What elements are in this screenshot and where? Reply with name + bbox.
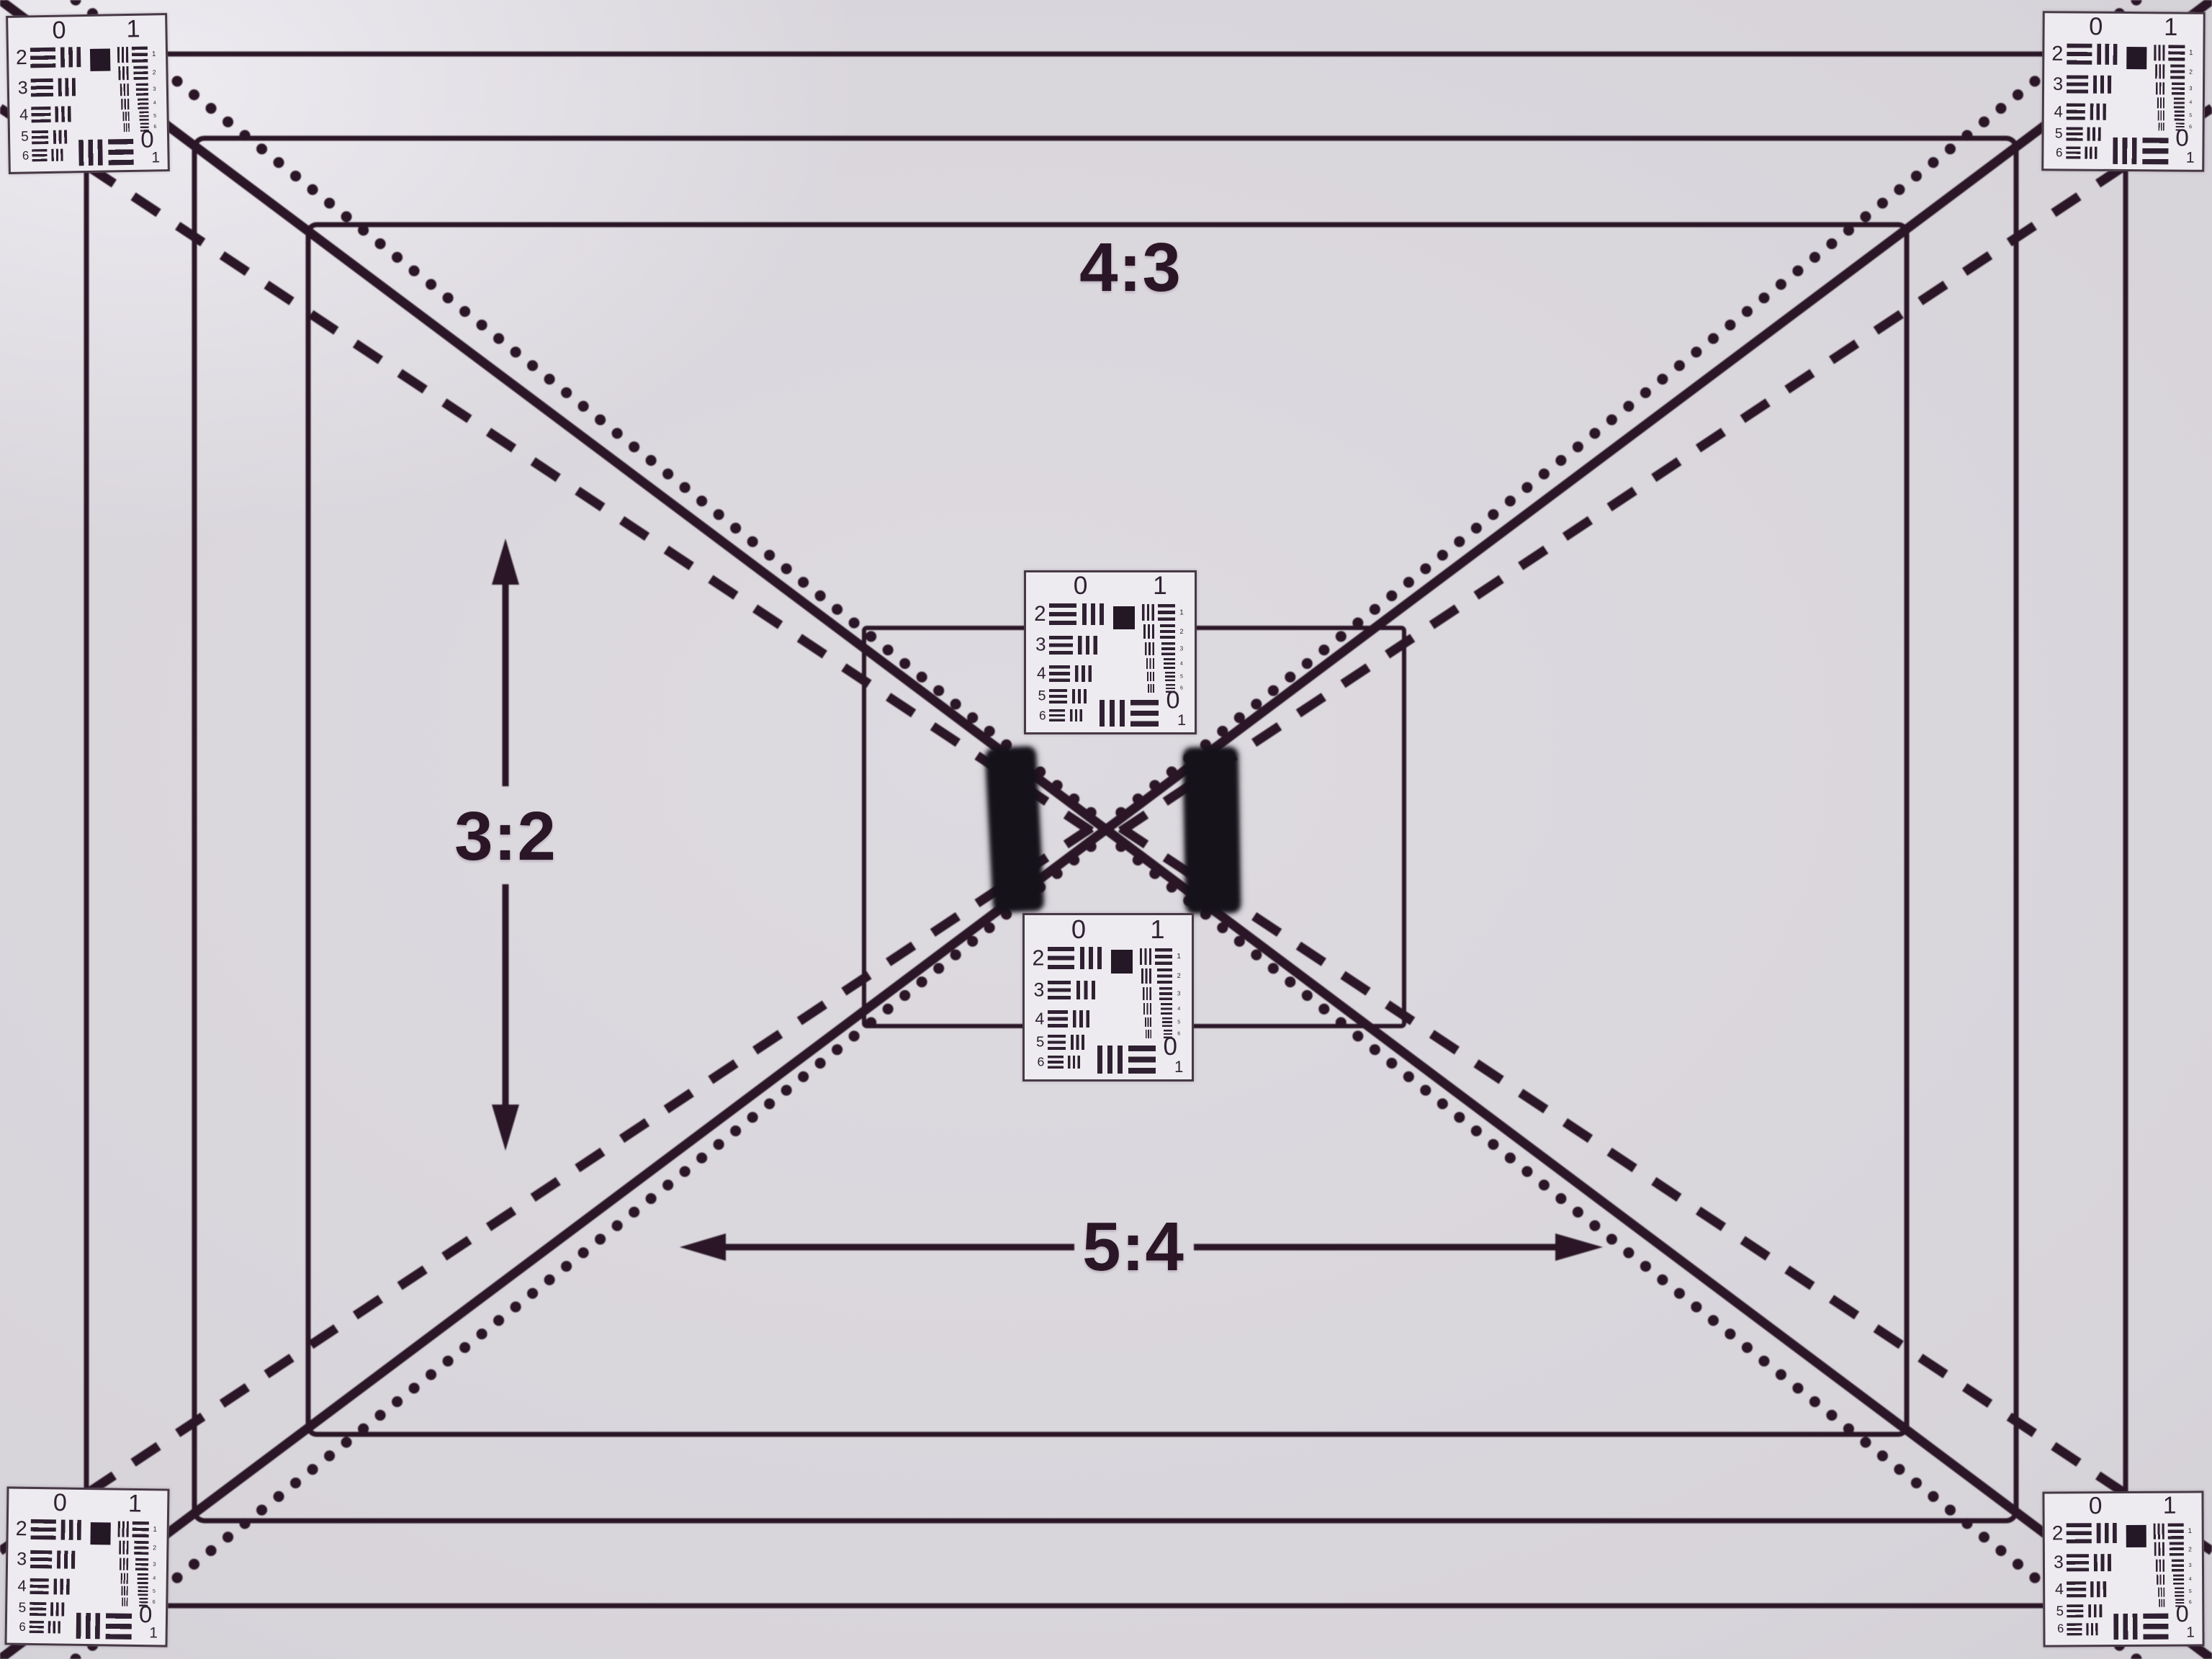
usaf-hbars-left-3: [1049, 636, 1073, 655]
usaf-hbars-right-4: [1164, 658, 1175, 669]
usaf-hbars-right-1: [1158, 604, 1175, 621]
usaf-vbars-right-5: [2158, 111, 2164, 120]
usaf-element-number-3: 3: [1035, 635, 1046, 656]
usaf-index-4: 4: [2189, 100, 2192, 105]
usaf-index-5: 5: [1180, 674, 1183, 679]
usaf-element-number-2: 2: [2052, 1522, 2064, 1545]
usaf-hbars-left-6: [1048, 1056, 1064, 1069]
usaf-index-3: 3: [153, 86, 156, 92]
usaf-group-label-0-bottom: 0: [1164, 1033, 1178, 1061]
arrow-5-4-right-head: [1555, 1233, 1603, 1261]
usaf-target-center-lower: 012345612345601: [1022, 913, 1194, 1082]
usaf-vbars-left-6: [2086, 1623, 2098, 1635]
aspect-ratio-label-4-3: 4:3: [1079, 228, 1182, 307]
usaf-group-label-1-bottom: 1: [1177, 711, 1186, 729]
usaf-vbars-left-3: [58, 78, 76, 96]
usaf-hbars-left-2: [30, 48, 55, 68]
usaf-vbars-left-4: [2090, 104, 2106, 120]
usaf-index-5: 5: [153, 114, 156, 119]
usaf-vbars-bottom: [1100, 700, 1125, 727]
usaf-vbars-right-5: [122, 112, 129, 121]
lens-test-chart-photo: 4:3 3:2 5:4 0123456123456010123456123456…: [0, 0, 2212, 1659]
usaf-vbars-right-2: [1143, 624, 1154, 639]
usaf-index-5: 5: [2189, 1589, 2192, 1594]
usaf-vbars-left-5: [1071, 1035, 1085, 1049]
usaf-index-6: 6: [2189, 1600, 2192, 1605]
usaf-hbars-left-2: [30, 1519, 55, 1540]
usaf-group-label-1-bottom: 1: [149, 1624, 158, 1642]
usaf-vbars-left-2: [60, 1519, 81, 1540]
usaf-vbars-left-5: [2087, 127, 2101, 141]
usaf-index-6: 6: [153, 1600, 156, 1605]
usaf-hbars-right-3: [2172, 82, 2185, 94]
usaf-hbars-bottom: [1128, 1046, 1156, 1074]
usaf-target-top-left: 012345612345601: [6, 13, 170, 174]
usaf-hbars-right-1: [1155, 948, 1172, 965]
usaf-hbars-left-4: [30, 1578, 49, 1594]
usaf-index-4: 4: [153, 101, 156, 106]
usaf-vbars-right-1: [2154, 45, 2165, 61]
usaf-element-number-5: 5: [2055, 126, 2063, 142]
usaf-element-number-3: 3: [2053, 74, 2063, 95]
usaf-index-2: 2: [2188, 1545, 2192, 1552]
usaf-vbars-left-6: [1068, 1056, 1080, 1069]
usaf-hbars-right-4: [138, 98, 148, 109]
usaf-element-number-4: 4: [1037, 664, 1046, 683]
usaf-vbars-left-6: [48, 1622, 60, 1634]
usaf-vbars-left-2: [1080, 947, 1102, 968]
usaf-vbars-left-4: [2090, 1581, 2106, 1597]
arrow-3-2-down-head: [492, 1105, 519, 1151]
usaf-hbars-bottom: [2143, 1614, 2169, 1640]
usaf-hbars-left-2: [1048, 947, 1074, 968]
usaf-hbars-right-5: [138, 1586, 148, 1596]
usaf-vbars-left-6: [51, 149, 63, 161]
usaf-hbars-left-6: [2066, 147, 2081, 159]
usaf-element-number-6: 6: [2056, 145, 2063, 160]
usaf-target-center-upper: 012345612345601: [1024, 570, 1197, 734]
usaf-hbars-left-4: [2066, 104, 2085, 120]
usaf-element-number-4: 4: [1035, 1009, 1044, 1028]
usaf-group-label-0: 0: [1074, 572, 1088, 601]
usaf-index-1: 1: [2189, 50, 2193, 58]
usaf-black-square: [91, 1522, 112, 1545]
usaf-black-square: [1111, 950, 1133, 974]
usaf-index-2: 2: [153, 1544, 156, 1551]
usaf-hbars-left-6: [29, 1621, 44, 1633]
arrow-5-4-left-head: [680, 1233, 726, 1261]
usaf-vbars-left-5: [50, 1602, 64, 1616]
usaf-index-2: 2: [153, 69, 156, 76]
usaf-vbars-left-4: [55, 107, 71, 122]
usaf-hbars-right-1: [132, 46, 148, 62]
usaf-element-number-3: 3: [17, 1549, 27, 1570]
usaf-vbars-right-2: [119, 1540, 129, 1555]
usaf-element-number-3: 3: [17, 78, 27, 99]
usaf-vbars-right-3: [120, 84, 129, 96]
usaf-group-label-0-bottom: 0: [139, 1601, 153, 1628]
usaf-group-label-1: 1: [2163, 1493, 2177, 1520]
usaf-vbars-right-4: [1143, 1003, 1151, 1015]
usaf-group-label-1-bottom: 1: [2186, 149, 2195, 166]
diagonal-dotted-top-left: [76, 0, 1106, 824]
usaf-hbars-right-5: [2175, 111, 2184, 120]
usaf-element-number-5: 5: [2056, 1604, 2064, 1619]
usaf-vbars-left-2: [2097, 44, 2117, 65]
usaf-vbars-right-3: [2156, 1560, 2164, 1572]
usaf-vbars-right-4: [122, 99, 130, 109]
usaf-hbars-right-2: [2170, 1542, 2184, 1556]
usaf-element-number-4: 4: [17, 1577, 27, 1596]
usaf-vbars-bottom: [2113, 138, 2136, 164]
usaf-group-label-0: 0: [1071, 914, 1086, 945]
usaf-hbars-left-5: [1049, 689, 1067, 703]
velcro-bar-left: [985, 746, 1044, 912]
velcro-bar-right: [1183, 747, 1241, 913]
usaf-hbars-right-1: [2168, 45, 2185, 61]
usaf-vbars-left-4: [1073, 1010, 1089, 1027]
usaf-index-1: 1: [2188, 1527, 2192, 1535]
usaf-vbars-right-1: [1142, 604, 1154, 621]
usaf-hbars-left-5: [2066, 127, 2083, 140]
usaf-index-3: 3: [153, 1561, 156, 1568]
usaf-vbars-right-2: [119, 66, 129, 81]
usaf-hbars-right-2: [134, 1540, 148, 1555]
usaf-hbars-right-3: [1159, 987, 1172, 1000]
usaf-group-label-0: 0: [2089, 13, 2103, 41]
usaf-element-number-3: 3: [1034, 979, 1045, 1002]
usaf-element-number-2: 2: [2051, 42, 2063, 66]
usaf-hbars-right-2: [134, 66, 148, 80]
usaf-group-label-1: 1: [2164, 14, 2177, 42]
usaf-hbars-right-2: [1160, 624, 1175, 639]
usaf-hbars-left-4: [1048, 1010, 1068, 1027]
usaf-hbars-left-2: [1049, 603, 1076, 625]
usaf-vbars-bottom: [1097, 1046, 1123, 1074]
usaf-hbars-left-4: [32, 107, 51, 122]
usaf-hbars-right-1: [132, 1521, 149, 1537]
usaf-element-number-5: 5: [18, 1601, 26, 1617]
usaf-vbars-left-2: [1082, 603, 1104, 625]
usaf-element-number-4: 4: [2054, 102, 2062, 121]
usaf-index-3: 3: [2189, 85, 2192, 91]
usaf-vbars-right-4: [1146, 658, 1154, 669]
usaf-index-6: 6: [153, 125, 156, 130]
usaf-hbars-left-3: [2066, 76, 2088, 94]
usaf-vbars-left-5: [2088, 1604, 2102, 1618]
usaf-black-square: [1113, 606, 1135, 629]
usaf-group-label-0-bottom: 0: [2175, 125, 2189, 153]
usaf-hbars-left-3: [2067, 1554, 2089, 1572]
usaf-element-number-4: 4: [2055, 1581, 2064, 1599]
usaf-hbars-right-4: [137, 1573, 148, 1584]
usaf-vbars-right-1: [2153, 1524, 2164, 1539]
diagonal-dashed-bottom-right: [1106, 818, 2212, 1551]
usaf-group-label-1: 1: [1150, 914, 1164, 945]
usaf-hbars-left-3: [1048, 981, 1071, 1000]
diagonal-dotted-top-right: [1106, 0, 2136, 824]
usaf-element-number-2: 2: [16, 46, 27, 70]
usaf-index-4: 4: [2189, 1577, 2192, 1582]
usaf-element-number-3: 3: [2054, 1553, 2064, 1573]
usaf-vbars-right-2: [1141, 968, 1151, 984]
usaf-element-number-6: 6: [2057, 1622, 2064, 1636]
usaf-index-6: 6: [2189, 125, 2192, 130]
usaf-vbars-left-6: [2085, 147, 2097, 159]
diagonal-dashed-top-right: [1106, 108, 2212, 841]
usaf-group-label-0: 0: [2089, 1493, 2103, 1521]
usaf-index-2: 2: [1177, 972, 1181, 979]
usaf-vbars-right-3: [120, 1557, 128, 1570]
usaf-hbars-right-5: [2175, 1587, 2184, 1596]
usaf-vbars-right-1: [1140, 948, 1151, 965]
usaf-element-number-6: 6: [22, 148, 30, 163]
usaf-vbars-right-2: [2155, 64, 2165, 78]
usaf-index-6: 6: [1177, 1031, 1180, 1036]
usaf-vbars-left-4: [53, 1579, 69, 1595]
usaf-index-3: 3: [1177, 990, 1181, 997]
usaf-vbars-left-3: [2093, 1554, 2111, 1572]
usaf-hbars-left-3: [30, 1550, 52, 1568]
usaf-vbars-right-5: [1145, 1017, 1152, 1028]
usaf-vbars-bottom: [2114, 1614, 2138, 1640]
usaf-hbars-bottom: [2142, 138, 2168, 164]
usaf-group-label-1: 1: [1153, 572, 1167, 601]
usaf-element-number-6: 6: [19, 1620, 26, 1635]
usaf-vbars-left-3: [57, 1551, 75, 1569]
usaf-hbars-left-2: [2067, 44, 2092, 65]
usaf-hbars-right-4: [1161, 1003, 1172, 1015]
usaf-group-label-1: 1: [126, 15, 140, 43]
usaf-index-1: 1: [1179, 608, 1184, 616]
usaf-index-2: 2: [2189, 68, 2193, 76]
usaf-group-label-1-bottom: 1: [151, 149, 160, 166]
usaf-hbars-bottom: [105, 1613, 132, 1640]
usaf-group-label-1-bottom: 1: [2186, 1624, 2195, 1642]
arrow-3-2-up-head: [492, 539, 519, 585]
usaf-hbars-left-5: [1048, 1035, 1066, 1049]
usaf-hbars-right-2: [2170, 65, 2185, 79]
usaf-hbars-left-6: [2067, 1623, 2082, 1635]
usaf-hbars-right-3: [1161, 642, 1174, 655]
usaf-element-number-2: 2: [16, 1517, 27, 1541]
usaf-index-3: 3: [1180, 646, 1183, 652]
usaf-hbars-right-5: [1165, 672, 1175, 681]
usaf-group-label-0: 0: [53, 1489, 67, 1517]
usaf-hbars-bottom: [108, 138, 134, 165]
usaf-vbars-left-3: [2093, 76, 2111, 94]
usaf-hbars-left-6: [32, 149, 48, 161]
usaf-index-5: 5: [1177, 1020, 1180, 1025]
usaf-vbars-right-1: [117, 1521, 129, 1537]
usaf-element-number-5: 5: [1036, 1034, 1044, 1051]
usaf-vbars-right-2: [2154, 1542, 2164, 1556]
usaf-black-square: [2126, 1525, 2146, 1547]
usaf-index-1: 1: [153, 1526, 157, 1534]
usaf-element-number-5: 5: [21, 130, 29, 145]
usaf-vbars-right-6: [2159, 1599, 2164, 1606]
usaf-vbars-right-5: [2158, 1587, 2164, 1596]
usaf-vbars-right-6: [122, 1598, 127, 1606]
usaf-index-6: 6: [1180, 685, 1183, 691]
usaf-vbars-left-2: [60, 47, 81, 68]
usaf-vbars-right-3: [2156, 82, 2164, 94]
usaf-vbars-left-3: [1078, 636, 1097, 655]
usaf-index-4: 4: [153, 1576, 156, 1581]
usaf-vbars-bottom: [78, 139, 102, 166]
usaf-vbars-left-5: [1072, 689, 1087, 703]
usaf-vbars-left-6: [1070, 709, 1083, 721]
usaf-hbars-right-3: [135, 1558, 148, 1570]
usaf-hbars-right-5: [139, 112, 148, 121]
usaf-black-square: [90, 49, 111, 72]
usaf-hbars-left-6: [1049, 709, 1065, 721]
usaf-hbars-right-2: [1157, 968, 1172, 984]
usaf-vbars-right-4: [2157, 1574, 2164, 1585]
usaf-group-label-0: 0: [52, 17, 66, 45]
usaf-hbars-left-3: [31, 78, 53, 97]
usaf-hbars-left-5: [2067, 1604, 2083, 1618]
usaf-vbars-left-3: [1076, 981, 1095, 1000]
usaf-black-square: [2126, 47, 2146, 70]
usaf-vbars-right-4: [121, 1573, 129, 1583]
usaf-vbars-left-5: [53, 130, 67, 143]
usaf-vbars-right-6: [2159, 122, 2164, 131]
usaf-vbars-right-3: [1143, 987, 1151, 1000]
usaf-index-1: 1: [1177, 952, 1181, 961]
usaf-hbars-bottom: [1130, 700, 1158, 727]
usaf-hbars-left-4: [2067, 1581, 2086, 1597]
diagonal-dashed-top-left: [0, 108, 1106, 841]
usaf-vbars-right-4: [2157, 97, 2164, 108]
usaf-index-3: 3: [2188, 1562, 2191, 1568]
usaf-vbars-left-2: [2097, 1523, 2117, 1543]
usaf-index-1: 1: [152, 50, 156, 58]
usaf-vbars-right-6: [1148, 684, 1154, 693]
usaf-element-number-2: 2: [1034, 602, 1046, 626]
usaf-element-number-6: 6: [1037, 1055, 1044, 1070]
usaf-index-4: 4: [1180, 661, 1183, 666]
usaf-element-number-2: 2: [1032, 945, 1044, 971]
usaf-vbars-right-5: [122, 1586, 128, 1596]
usaf-index-2: 2: [1179, 628, 1183, 635]
usaf-vbars-bottom: [76, 1612, 100, 1639]
usaf-hbars-right-3: [136, 83, 149, 95]
usaf-element-number-4: 4: [19, 106, 29, 125]
aspect-ratio-label-3-2: 3:2: [454, 797, 557, 876]
usaf-index-4: 4: [1177, 1006, 1180, 1012]
diagonal-dashed-bottom-left: [0, 818, 1106, 1551]
usaf-hbars-right-4: [2173, 1574, 2184, 1585]
usaf-target-bottom-left: 012345612345601: [4, 1486, 169, 1647]
aspect-ratio-label-5-4: 5:4: [1082, 1208, 1184, 1287]
usaf-group-label-1-bottom: 1: [1174, 1058, 1183, 1076]
usaf-hbars-right-4: [2173, 97, 2184, 108]
usaf-hbars-left-5: [30, 1601, 47, 1615]
usaf-index-5: 5: [153, 1588, 156, 1593]
usaf-hbars-right-3: [2172, 1560, 2184, 1572]
usaf-vbars-left-4: [1075, 665, 1092, 682]
usaf-hbars-left-2: [2067, 1523, 2092, 1543]
usaf-index-5: 5: [2189, 113, 2192, 118]
usaf-hbars-right-5: [1162, 1017, 1172, 1028]
usaf-target-top-right: 012345612345601: [2041, 11, 2206, 172]
usaf-vbars-right-6: [124, 123, 130, 132]
usaf-vbars-right-3: [1145, 642, 1154, 655]
usaf-element-number-5: 5: [1038, 688, 1046, 705]
usaf-hbars-right-1: [2167, 1524, 2184, 1539]
usaf-target-bottom-right: 012345612345601: [2042, 1491, 2204, 1647]
usaf-vbars-right-6: [1146, 1030, 1151, 1038]
usaf-element-number-6: 6: [1039, 708, 1046, 723]
usaf-vbars-right-5: [1147, 672, 1154, 681]
usaf-vbars-right-1: [117, 47, 128, 63]
usaf-group-label-1: 1: [128, 1490, 142, 1518]
usaf-hbars-left-4: [1049, 665, 1069, 682]
usaf-hbars-left-5: [32, 130, 49, 144]
